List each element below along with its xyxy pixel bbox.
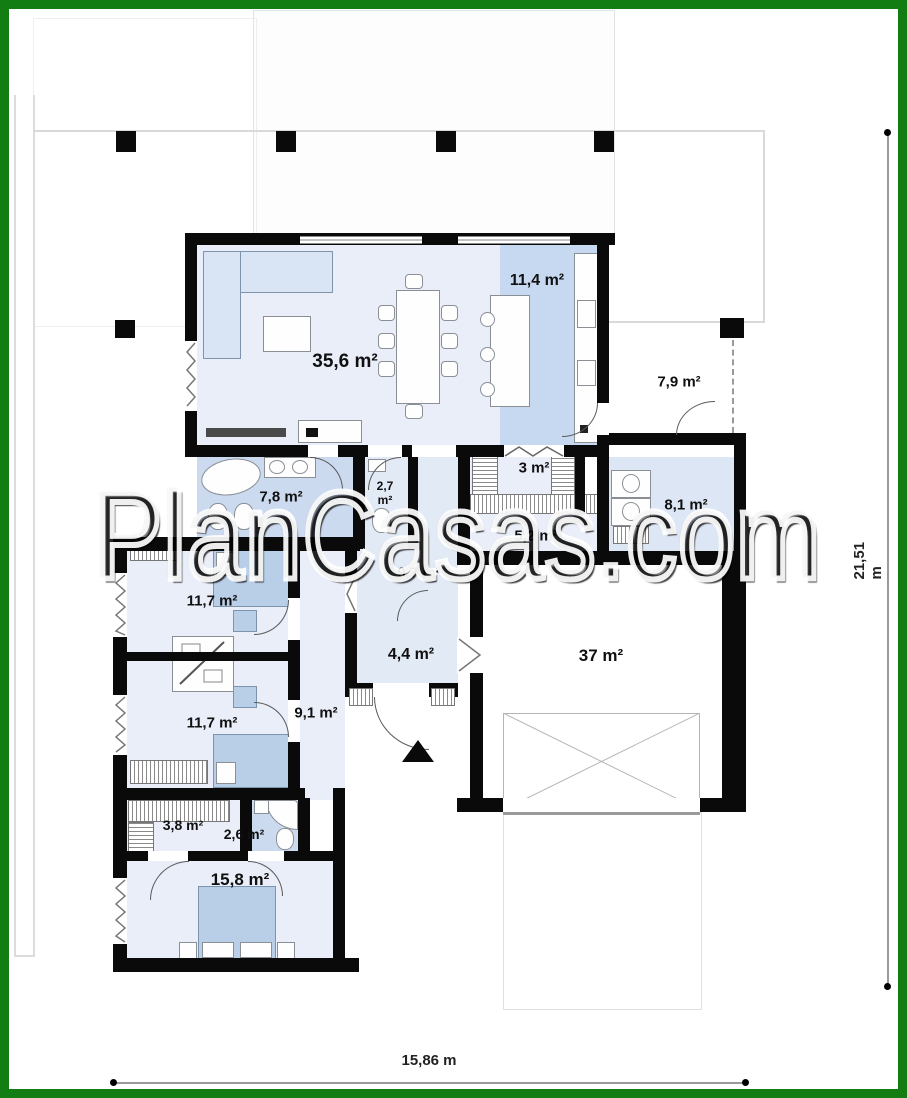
room-label-bedroom2: 11,7 m² bbox=[187, 715, 238, 732]
door-opening bbox=[148, 851, 188, 861]
kitchen-sink bbox=[577, 300, 596, 328]
bar-stool bbox=[480, 312, 495, 327]
wall bbox=[113, 958, 359, 972]
bath2-toilet bbox=[276, 828, 294, 850]
terrace-edge-bottom bbox=[14, 955, 35, 957]
wall bbox=[298, 798, 310, 853]
door-opening bbox=[308, 445, 338, 457]
eaves-line bbox=[35, 130, 764, 132]
corner-sofa bbox=[203, 251, 241, 359]
zigzag-window-icon bbox=[113, 878, 127, 944]
room-label-bath2: 2,6 m² bbox=[224, 826, 264, 842]
room-label-living: 35,6 m² bbox=[312, 351, 377, 373]
garage-door-opening bbox=[503, 798, 700, 815]
room-label-corridor: 9,1 m² bbox=[294, 705, 337, 722]
room-label-porch: 7,9 m² bbox=[657, 374, 700, 391]
door-sidelight bbox=[431, 688, 455, 706]
chevron-icon bbox=[457, 637, 483, 673]
dining-chair bbox=[378, 305, 395, 321]
bath2-sink bbox=[254, 800, 269, 814]
dining-chair bbox=[378, 333, 395, 349]
wall bbox=[113, 788, 305, 800]
kitchen-stove bbox=[577, 360, 596, 386]
window bbox=[458, 236, 570, 244]
coffee-table bbox=[263, 316, 311, 352]
dining-table bbox=[396, 290, 440, 404]
chevron-opening bbox=[457, 637, 483, 673]
tv-cabinet bbox=[206, 428, 286, 437]
wall bbox=[700, 798, 746, 812]
terrace-edge-outer bbox=[14, 95, 16, 957]
garage-gate-swing bbox=[503, 713, 700, 810]
fireplace bbox=[306, 428, 318, 437]
door-opening bbox=[368, 445, 402, 457]
bar-stool bbox=[480, 347, 495, 362]
accordion-door-icon bbox=[504, 445, 564, 457]
door-opening bbox=[597, 403, 609, 435]
door-opening bbox=[248, 851, 284, 861]
window bbox=[300, 236, 422, 244]
room-label-master: 15,8 m² bbox=[211, 870, 270, 890]
door-arc bbox=[676, 401, 715, 435]
watermark: PlanCasas.com bbox=[18, 465, 898, 608]
pillar bbox=[276, 131, 296, 152]
entry-arrow-icon bbox=[402, 740, 434, 762]
window-opening bbox=[113, 878, 127, 944]
eaves-line-right bbox=[763, 130, 765, 322]
floor-plan-canvas: 35,6 m² 11,4 m² 7,9 m² 3 m² 2,7 m² 7,8 m… bbox=[0, 0, 907, 1098]
zigzag-window-icon bbox=[113, 695, 127, 755]
dining-chair bbox=[441, 333, 458, 349]
dining-chair bbox=[441, 305, 458, 321]
dimension-dot bbox=[884, 983, 891, 990]
wall bbox=[333, 788, 345, 972]
kitchen-island bbox=[490, 295, 530, 407]
pillar bbox=[436, 131, 456, 152]
wall bbox=[127, 652, 288, 661]
dining-chair bbox=[405, 404, 423, 419]
wardrobe-unit bbox=[130, 760, 208, 784]
pillow bbox=[202, 942, 234, 958]
room-label-garage: 37 m² bbox=[579, 646, 623, 666]
pillar bbox=[115, 320, 135, 338]
door-sidelight bbox=[349, 688, 373, 706]
front-door-opening bbox=[373, 683, 429, 697]
room-label-kitchen: 11,4 m² bbox=[510, 272, 564, 290]
dimension-dot bbox=[110, 1079, 117, 1086]
pillow bbox=[216, 762, 236, 784]
porch-edge-dashed bbox=[732, 340, 734, 433]
closet bbox=[128, 822, 154, 852]
dining-chair bbox=[405, 274, 423, 289]
room-label-wardrobe: 3,8 m² bbox=[163, 817, 203, 833]
wall bbox=[457, 798, 503, 812]
dimension-label-width: 15,86 m bbox=[401, 1052, 456, 1069]
pillar bbox=[116, 131, 136, 152]
pillow bbox=[240, 942, 272, 958]
roof-outline-top bbox=[253, 10, 615, 235]
pillar bbox=[720, 318, 744, 338]
hall-opening bbox=[412, 445, 456, 457]
dining-chair bbox=[378, 361, 395, 377]
room-label-entry: 4,4 m² bbox=[388, 646, 434, 664]
window-opening bbox=[185, 341, 197, 411]
dimension-line-width bbox=[113, 1082, 746, 1084]
dimension-dot bbox=[884, 129, 891, 136]
bar-stool bbox=[480, 382, 495, 397]
accordion-door-opening bbox=[504, 445, 564, 457]
driveway bbox=[503, 812, 702, 1010]
zigzag-window-icon bbox=[185, 341, 197, 411]
window-opening bbox=[113, 695, 127, 755]
dining-chair bbox=[441, 361, 458, 377]
pillar bbox=[594, 131, 614, 152]
dresser-icon bbox=[172, 636, 232, 690]
dimension-dot bbox=[742, 1079, 749, 1086]
